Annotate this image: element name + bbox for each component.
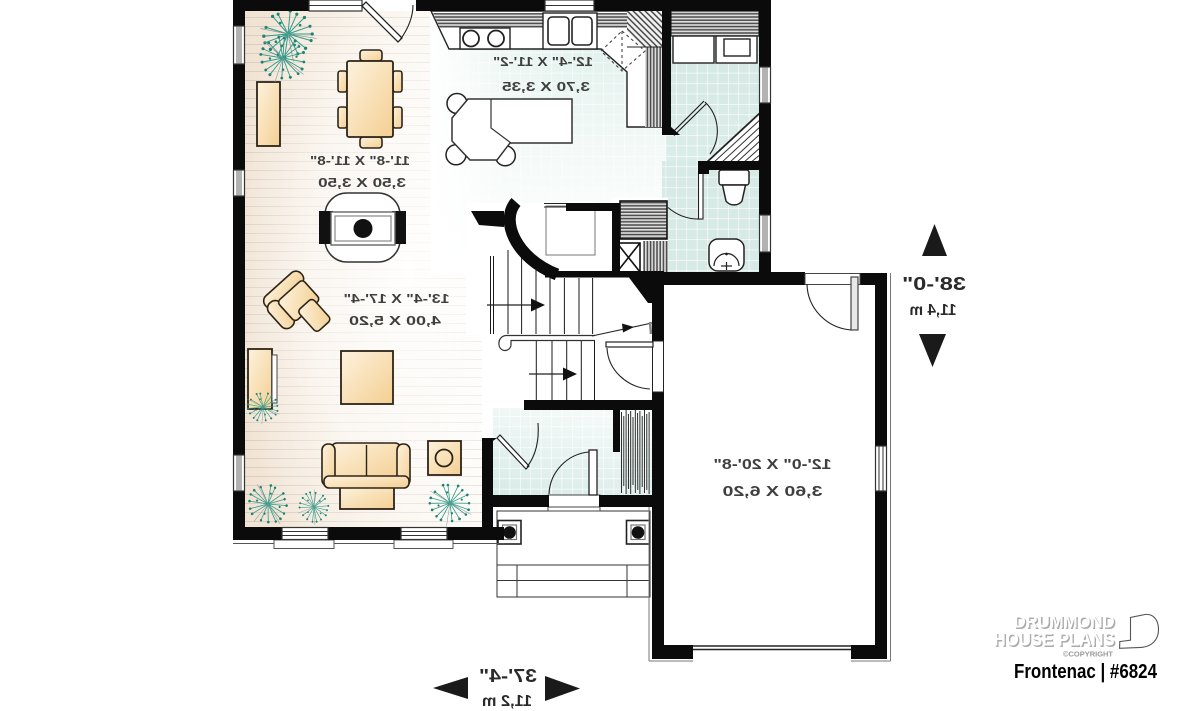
- svg-text:37'-4": 37'-4": [479, 665, 537, 686]
- svg-text:38'-0": 38'-0": [902, 273, 966, 294]
- svg-text:12'-0" X 20'-8": 12'-0" X 20'-8": [714, 457, 832, 473]
- svg-text:12'-4" X 11'-2": 12'-4" X 11'-2": [493, 54, 593, 69]
- svg-text:13'-4" X 17'-4": 13'-4" X 17'-4": [344, 291, 450, 306]
- svg-text:3,50 X 3,50: 3,50 X 3,50: [318, 175, 406, 190]
- svg-text:11,2 m: 11,2 m: [482, 693, 532, 710]
- svg-text:©COPYRIGHT: ©COPYRIGHT: [1063, 650, 1113, 659]
- svg-text:11,4 m: 11,4 m: [910, 302, 957, 319]
- svg-text:3,60 X 6,20: 3,60 X 6,20: [723, 484, 823, 500]
- svg-text:3,70 X 3,35: 3,70 X 3,35: [502, 79, 590, 94]
- svg-text:11'-8" X 11'-8": 11'-8" X 11'-8": [310, 153, 410, 168]
- svg-text:4,00 X 5,20: 4,00 X 5,20: [349, 313, 441, 328]
- svg-text:Frontenac | #6824: Frontenac | #6824: [1014, 661, 1158, 683]
- svg-text:HOUSE PLANS: HOUSE PLANS: [994, 628, 1115, 649]
